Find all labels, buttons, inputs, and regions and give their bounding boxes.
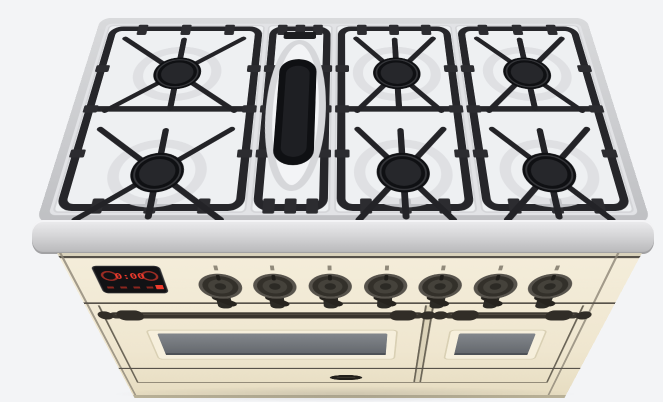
front-panel: 0:00 — [57, 253, 642, 398]
display-button — [133, 287, 140, 289]
oven-display: 0:00 — [91, 266, 168, 293]
knob-mark — [385, 266, 389, 271]
cooktop — [36, 18, 651, 223]
base-strip-trim — [118, 368, 580, 369]
panel-top-trim — [59, 256, 641, 258]
left-oven-window — [157, 333, 387, 354]
panel-middle-trim — [83, 302, 615, 304]
knob-mark — [270, 266, 275, 271]
right-oven-window — [454, 333, 536, 354]
cooktop-surface — [36, 18, 651, 223]
display-button — [146, 287, 153, 289]
floor-shadow — [110, 386, 580, 402]
display-button — [120, 287, 127, 289]
cooktop-front-band — [32, 220, 654, 254]
range-cooker-render: 0:00 — [0, 0, 663, 402]
knob-mark — [328, 266, 332, 271]
display-clock: 0:00 — [113, 272, 147, 280]
front-panel-face: 0:00 — [57, 253, 642, 398]
display-button — [107, 287, 114, 289]
